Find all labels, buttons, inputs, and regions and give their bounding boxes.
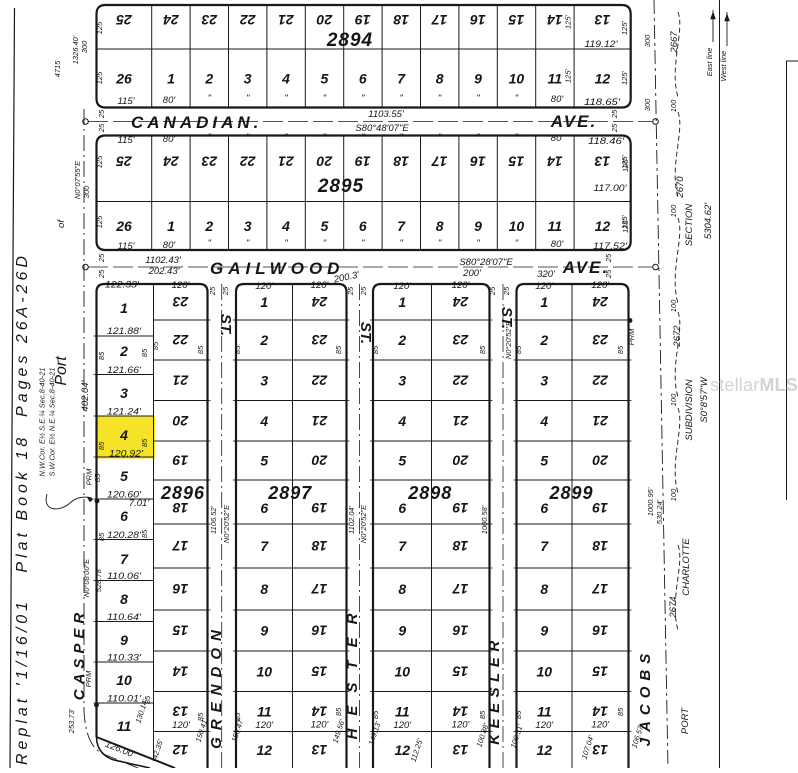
svg-text:N0°20′52"E: N0°20′52"E bbox=[359, 504, 368, 543]
svg-text:528.78': 528.78' bbox=[94, 567, 103, 592]
svg-text:15: 15 bbox=[508, 12, 524, 28]
svg-text:7: 7 bbox=[397, 70, 406, 86]
svg-text:122.33': 122.33' bbox=[105, 280, 140, 291]
svg-text:125: 125 bbox=[95, 71, 104, 84]
svg-text:25: 25 bbox=[604, 269, 613, 279]
svg-text:12: 12 bbox=[173, 742, 189, 758]
svg-text:20: 20 bbox=[453, 453, 470, 469]
svg-text:AVE.: AVE. bbox=[562, 258, 609, 277]
svg-text:4: 4 bbox=[539, 413, 548, 429]
svg-text:3: 3 bbox=[260, 372, 268, 388]
svg-text:18: 18 bbox=[312, 538, 328, 554]
svg-text:120': 120' bbox=[452, 720, 471, 731]
svg-text:24: 24 bbox=[163, 12, 180, 28]
svg-text:15: 15 bbox=[592, 663, 608, 679]
svg-text:25: 25 bbox=[610, 109, 619, 119]
svg-text:202.43': 202.43' bbox=[148, 266, 181, 277]
svg-text:2894: 2894 bbox=[326, 30, 373, 51]
svg-text:25: 25 bbox=[346, 286, 355, 296]
svg-text:85: 85 bbox=[371, 710, 380, 719]
svg-text:125': 125' bbox=[564, 68, 573, 83]
svg-text:12: 12 bbox=[256, 742, 272, 758]
svg-text:25: 25 bbox=[116, 12, 133, 28]
svg-text:1102.04': 1102.04' bbox=[347, 505, 356, 534]
svg-text:22: 22 bbox=[453, 372, 470, 388]
svg-text:300: 300 bbox=[643, 34, 652, 47]
svg-text:of: of bbox=[56, 219, 67, 228]
svg-text:23: 23 bbox=[201, 12, 218, 28]
svg-text:GAILWOOD: GAILWOOD bbox=[210, 259, 344, 278]
svg-text:85: 85 bbox=[196, 345, 205, 354]
svg-text:125': 125' bbox=[620, 20, 629, 35]
svg-text:115': 115' bbox=[118, 96, 136, 107]
svg-text:24: 24 bbox=[592, 294, 609, 310]
svg-text:23: 23 bbox=[312, 332, 329, 348]
svg-text:115': 115' bbox=[118, 135, 136, 146]
svg-text:13: 13 bbox=[592, 742, 608, 758]
svg-text:24: 24 bbox=[163, 154, 180, 170]
svg-text:7: 7 bbox=[398, 538, 407, 554]
svg-text:120': 120' bbox=[255, 720, 274, 731]
svg-text:530.24': 530.24' bbox=[655, 499, 664, 524]
svg-text:6: 6 bbox=[260, 500, 268, 516]
svg-text:23: 23 bbox=[201, 154, 218, 170]
svg-text:N0°20′52"E: N0°20′52"E bbox=[504, 320, 513, 359]
svg-text:9: 9 bbox=[398, 623, 406, 639]
svg-text:125: 125 bbox=[95, 215, 104, 228]
svg-text:8: 8 bbox=[436, 218, 444, 234]
svg-text:CANADIAN.: CANADIAN. bbox=[131, 113, 262, 132]
svg-text:2898: 2898 bbox=[407, 483, 452, 503]
svg-text:ST.: ST. bbox=[217, 314, 234, 336]
svg-text:SECTION: SECTION bbox=[684, 204, 695, 246]
svg-text:10: 10 bbox=[536, 663, 552, 679]
svg-text:15: 15 bbox=[312, 663, 328, 679]
svg-text:85: 85 bbox=[514, 710, 523, 719]
svg-text:6: 6 bbox=[540, 500, 548, 516]
svg-text:15: 15 bbox=[508, 154, 524, 170]
svg-text:4: 4 bbox=[281, 218, 290, 234]
svg-text:18: 18 bbox=[393, 154, 409, 170]
svg-text:7: 7 bbox=[397, 218, 406, 234]
svg-text:5: 5 bbox=[321, 70, 329, 86]
svg-text:14: 14 bbox=[547, 154, 563, 170]
svg-text:13: 13 bbox=[173, 704, 189, 720]
svg-text:85: 85 bbox=[140, 438, 149, 447]
svg-text:2: 2 bbox=[204, 70, 213, 86]
svg-text:200': 200' bbox=[462, 268, 482, 279]
svg-text:1: 1 bbox=[398, 294, 406, 310]
svg-text:4: 4 bbox=[119, 427, 128, 443]
svg-text:110.01': 110.01' bbox=[107, 694, 142, 705]
svg-text:7: 7 bbox=[260, 538, 269, 554]
svg-text:16: 16 bbox=[173, 581, 189, 597]
svg-text:110.33': 110.33' bbox=[107, 653, 142, 664]
svg-text:120': 120' bbox=[591, 720, 610, 731]
svg-text:10: 10 bbox=[509, 70, 525, 86]
svg-text:253.73': 253.73' bbox=[67, 708, 76, 734]
svg-text:AVE.: AVE. bbox=[550, 112, 597, 131]
svg-text:2: 2 bbox=[119, 343, 128, 359]
svg-text:5: 5 bbox=[398, 453, 406, 469]
svg-text:1: 1 bbox=[260, 294, 268, 310]
svg-text:PORT: PORT bbox=[680, 707, 691, 734]
svg-text:12: 12 bbox=[536, 742, 552, 758]
svg-text:22: 22 bbox=[240, 12, 257, 28]
svg-text:21: 21 bbox=[173, 372, 190, 388]
svg-text:7: 7 bbox=[540, 538, 549, 554]
svg-text:13: 13 bbox=[453, 742, 469, 758]
svg-text:S80°28′07"E: S80°28′07"E bbox=[459, 257, 513, 268]
svg-text:25: 25 bbox=[97, 123, 106, 133]
svg-text:21: 21 bbox=[278, 154, 295, 170]
svg-text:320': 320' bbox=[537, 269, 556, 280]
svg-text:19: 19 bbox=[453, 500, 469, 516]
svg-text:1103.55': 1103.55' bbox=[368, 109, 405, 120]
svg-text:117.52': 117.52' bbox=[593, 241, 628, 252]
svg-text:100: 100 bbox=[669, 393, 678, 406]
svg-text:24: 24 bbox=[312, 294, 329, 310]
svg-text:10: 10 bbox=[256, 663, 272, 679]
svg-text:4: 4 bbox=[259, 413, 268, 429]
svg-text:25: 25 bbox=[221, 286, 230, 296]
svg-text:12: 12 bbox=[595, 218, 611, 234]
svg-text:N0°07′55"E: N0°07′55"E bbox=[73, 160, 82, 199]
svg-text:2667: 2667 bbox=[669, 31, 680, 54]
svg-text:125': 125' bbox=[621, 218, 630, 233]
svg-text:6: 6 bbox=[359, 70, 367, 86]
svg-text:4715: 4715 bbox=[53, 60, 62, 78]
svg-text:2: 2 bbox=[539, 332, 548, 348]
svg-text:SUBDIVISION: SUBDIVISION bbox=[684, 379, 695, 440]
svg-text:25: 25 bbox=[97, 253, 106, 263]
svg-text:85: 85 bbox=[478, 710, 487, 719]
svg-text:85: 85 bbox=[140, 348, 149, 357]
svg-text:23: 23 bbox=[173, 294, 190, 310]
svg-text:19: 19 bbox=[355, 154, 371, 170]
svg-text:8: 8 bbox=[398, 581, 406, 597]
svg-text:85: 85 bbox=[616, 345, 625, 354]
svg-text:80': 80' bbox=[551, 239, 565, 250]
svg-text:100: 100 bbox=[669, 299, 678, 312]
svg-text:120': 120' bbox=[535, 281, 554, 292]
svg-text:6: 6 bbox=[398, 500, 406, 516]
svg-text:3: 3 bbox=[398, 372, 406, 388]
svg-text:115': 115' bbox=[118, 241, 136, 252]
svg-text:14: 14 bbox=[453, 704, 469, 720]
svg-text:8: 8 bbox=[540, 581, 548, 597]
svg-text:1: 1 bbox=[167, 218, 175, 234]
svg-text:120': 120' bbox=[452, 280, 471, 291]
svg-text:300: 300 bbox=[643, 98, 652, 111]
svg-text:2895: 2895 bbox=[317, 176, 364, 197]
svg-text:25: 25 bbox=[116, 154, 133, 170]
svg-text:5: 5 bbox=[120, 468, 128, 484]
svg-text:117.00': 117.00' bbox=[594, 183, 628, 194]
svg-text:PRM: PRM bbox=[84, 670, 93, 687]
svg-text:120': 120' bbox=[311, 280, 330, 291]
svg-text:23: 23 bbox=[453, 332, 470, 348]
svg-text:19: 19 bbox=[592, 500, 608, 516]
svg-text:85: 85 bbox=[140, 529, 149, 538]
svg-text:25: 25 bbox=[502, 286, 511, 296]
svg-text:24: 24 bbox=[453, 294, 470, 310]
svg-text:HESTER: HESTER bbox=[344, 601, 361, 740]
svg-text:2672: 2672 bbox=[672, 325, 683, 348]
svg-text:10: 10 bbox=[116, 672, 132, 688]
svg-text:22: 22 bbox=[240, 154, 257, 170]
svg-text:East line: East line bbox=[705, 48, 714, 77]
svg-text:6: 6 bbox=[120, 508, 128, 524]
svg-text:80': 80' bbox=[163, 240, 177, 251]
svg-text:CHARLOTTE: CHARLOTTE bbox=[681, 538, 692, 596]
svg-text:25: 25 bbox=[488, 286, 497, 296]
svg-text:Replat ′1/16/01 Plat Book 18: Replat ′1/16/01 Plat Book 18 Pages 26A-2… bbox=[14, 252, 31, 765]
svg-text:80': 80' bbox=[551, 133, 565, 144]
svg-text:300: 300 bbox=[82, 185, 91, 198]
svg-text:25: 25 bbox=[97, 109, 106, 119]
svg-text:17: 17 bbox=[591, 581, 608, 597]
svg-text:11: 11 bbox=[257, 704, 272, 720]
svg-text:3: 3 bbox=[540, 372, 548, 388]
svg-text:13: 13 bbox=[312, 742, 328, 758]
svg-text:25: 25 bbox=[359, 286, 368, 296]
svg-text:120.28': 120.28' bbox=[107, 530, 142, 541]
svg-text:20: 20 bbox=[312, 453, 329, 469]
svg-text:2: 2 bbox=[259, 332, 268, 348]
svg-text:402.04': 402.04' bbox=[80, 379, 91, 411]
svg-text:11: 11 bbox=[117, 718, 132, 734]
svg-text:16: 16 bbox=[453, 623, 469, 639]
svg-text:N0°08′00"E: N0°08′00"E bbox=[82, 558, 91, 597]
svg-text:West line: West line bbox=[719, 51, 728, 82]
svg-text:5: 5 bbox=[321, 218, 329, 234]
svg-text:10: 10 bbox=[509, 218, 525, 234]
svg-text:1: 1 bbox=[540, 294, 548, 310]
svg-text:26: 26 bbox=[115, 218, 132, 234]
svg-text:14: 14 bbox=[173, 663, 189, 679]
svg-text:26: 26 bbox=[115, 70, 132, 86]
svg-text:125: 125 bbox=[95, 155, 104, 168]
svg-text:17: 17 bbox=[431, 154, 448, 170]
svg-text:13: 13 bbox=[594, 154, 610, 170]
svg-text:6: 6 bbox=[359, 218, 367, 234]
svg-text:22: 22 bbox=[173, 332, 190, 348]
svg-text:20: 20 bbox=[316, 154, 333, 170]
svg-text:25: 25 bbox=[97, 269, 106, 279]
svg-text:20: 20 bbox=[592, 453, 609, 469]
svg-text:2899: 2899 bbox=[548, 483, 593, 503]
svg-text:25: 25 bbox=[604, 253, 613, 263]
svg-text:1: 1 bbox=[120, 300, 128, 316]
svg-text:100: 100 bbox=[669, 204, 678, 217]
svg-text:13: 13 bbox=[594, 12, 610, 28]
svg-text:2896: 2896 bbox=[160, 483, 205, 503]
svg-text:120.92': 120.92' bbox=[109, 449, 144, 460]
svg-text:85: 85 bbox=[93, 473, 102, 482]
svg-text:18: 18 bbox=[393, 12, 409, 28]
svg-text:1000.95': 1000.95' bbox=[646, 487, 655, 516]
svg-text:12: 12 bbox=[394, 742, 410, 758]
svg-text:2: 2 bbox=[204, 218, 213, 234]
svg-text:18: 18 bbox=[453, 538, 469, 554]
svg-text:22: 22 bbox=[592, 372, 609, 388]
svg-text:120': 120' bbox=[535, 720, 554, 731]
svg-text:17: 17 bbox=[431, 12, 448, 28]
svg-text:120': 120' bbox=[311, 720, 330, 731]
svg-text:8: 8 bbox=[436, 70, 444, 86]
svg-text:80': 80' bbox=[551, 94, 565, 105]
svg-text:85: 85 bbox=[616, 707, 625, 716]
svg-text:9: 9 bbox=[260, 623, 268, 639]
svg-text:120': 120' bbox=[393, 720, 412, 731]
svg-text:85: 85 bbox=[371, 345, 380, 354]
svg-text:7.01': 7.01' bbox=[129, 498, 150, 509]
svg-text:121.24': 121.24' bbox=[107, 407, 142, 418]
svg-text:14: 14 bbox=[592, 704, 608, 720]
svg-text:21: 21 bbox=[453, 413, 470, 429]
svg-text:1102.43': 1102.43' bbox=[145, 255, 182, 266]
svg-text:80': 80' bbox=[163, 95, 177, 106]
svg-text:125': 125' bbox=[564, 14, 573, 29]
svg-text:85: 85 bbox=[97, 441, 106, 450]
svg-text:8: 8 bbox=[120, 591, 128, 607]
svg-text:9: 9 bbox=[540, 623, 548, 639]
svg-text:20: 20 bbox=[316, 12, 333, 28]
svg-text:120': 120' bbox=[591, 280, 610, 291]
svg-text:15: 15 bbox=[453, 663, 469, 679]
svg-text:118.65': 118.65' bbox=[584, 97, 621, 108]
svg-text:85: 85 bbox=[233, 345, 242, 354]
svg-text:3: 3 bbox=[244, 218, 252, 234]
svg-text:100: 100 bbox=[669, 99, 678, 112]
svg-text:8: 8 bbox=[260, 581, 268, 597]
svg-text:85: 85 bbox=[334, 707, 343, 716]
svg-text:300: 300 bbox=[80, 40, 89, 53]
svg-text:5: 5 bbox=[540, 453, 548, 469]
svg-text:3: 3 bbox=[120, 385, 128, 401]
svg-text:85: 85 bbox=[97, 351, 106, 360]
svg-text:120': 120' bbox=[172, 280, 191, 291]
svg-text:21: 21 bbox=[312, 413, 329, 429]
svg-text:PRM: PRM bbox=[627, 328, 636, 345]
svg-text:100: 100 bbox=[669, 488, 678, 501]
svg-text:19: 19 bbox=[355, 12, 371, 28]
svg-text:11: 11 bbox=[395, 704, 410, 720]
svg-text:16: 16 bbox=[470, 12, 486, 28]
svg-text:120': 120' bbox=[255, 281, 274, 292]
svg-text:16: 16 bbox=[312, 623, 328, 639]
svg-text:9: 9 bbox=[120, 632, 128, 648]
svg-text:85: 85 bbox=[478, 345, 487, 354]
svg-text:14: 14 bbox=[547, 12, 563, 28]
svg-text:11: 11 bbox=[537, 704, 552, 720]
svg-text:11: 11 bbox=[548, 218, 563, 234]
svg-text:17: 17 bbox=[172, 538, 189, 554]
svg-text:10: 10 bbox=[394, 663, 410, 679]
svg-text:12: 12 bbox=[595, 70, 611, 86]
svg-text:125': 125' bbox=[621, 157, 630, 172]
svg-text:9: 9 bbox=[474, 70, 482, 86]
svg-text:5: 5 bbox=[260, 453, 268, 469]
svg-text:125': 125' bbox=[620, 70, 629, 85]
svg-text:9: 9 bbox=[474, 218, 482, 234]
svg-text:25: 25 bbox=[610, 123, 619, 133]
svg-text:15: 15 bbox=[173, 623, 189, 639]
svg-text:4: 4 bbox=[397, 413, 406, 429]
svg-text:S.W.Cor. E½ N.E.¼ Sec.8-40-21: S.W.Cor. E½ N.E.¼ Sec.8-40-21 bbox=[48, 367, 57, 476]
svg-text:125: 125 bbox=[95, 21, 104, 34]
svg-text:22: 22 bbox=[312, 372, 329, 388]
svg-text:121.66': 121.66' bbox=[107, 365, 142, 376]
svg-text:21: 21 bbox=[592, 413, 609, 429]
svg-text:120': 120' bbox=[393, 281, 412, 292]
svg-text:S80°48′07"E: S80°48′07"E bbox=[355, 123, 409, 134]
svg-text:19: 19 bbox=[173, 453, 189, 469]
svg-text:120': 120' bbox=[172, 720, 191, 731]
svg-text:7: 7 bbox=[120, 551, 129, 567]
svg-text:2670: 2670 bbox=[675, 176, 686, 199]
svg-text:1000.58': 1000.58' bbox=[480, 505, 489, 534]
svg-text:118.46': 118.46' bbox=[588, 136, 625, 147]
svg-text:1: 1 bbox=[167, 70, 175, 86]
svg-text:16: 16 bbox=[592, 623, 608, 639]
svg-text:16: 16 bbox=[470, 154, 486, 170]
svg-text:25: 25 bbox=[208, 286, 217, 296]
svg-text:S0°8′57"W: S0°8′57"W bbox=[699, 376, 710, 422]
svg-text:20: 20 bbox=[173, 413, 190, 429]
svg-text:17: 17 bbox=[452, 581, 469, 597]
svg-text:11: 11 bbox=[548, 70, 563, 86]
svg-text:121.88': 121.88' bbox=[107, 326, 142, 337]
svg-text:19: 19 bbox=[312, 500, 328, 516]
svg-text:4: 4 bbox=[281, 70, 290, 86]
svg-text:21: 21 bbox=[278, 12, 295, 28]
svg-text:110.64': 110.64' bbox=[107, 612, 142, 623]
svg-text:85: 85 bbox=[334, 345, 343, 354]
svg-text:2897: 2897 bbox=[267, 483, 312, 503]
svg-text:80': 80' bbox=[163, 134, 177, 145]
svg-text:N.W.Cor. E½ S.E.¼ Sec.8-40-21: N.W.Cor. E½ S.E.¼ Sec.8-40-21 bbox=[38, 367, 47, 476]
svg-text:23: 23 bbox=[592, 332, 609, 348]
svg-text:85: 85 bbox=[151, 341, 160, 350]
svg-text:85: 85 bbox=[514, 345, 523, 354]
svg-text:14: 14 bbox=[312, 704, 328, 720]
svg-text:N0°20′52"E: N0°20′52"E bbox=[222, 504, 231, 543]
svg-text:2: 2 bbox=[397, 332, 406, 348]
svg-text:5304.62': 5304.62' bbox=[703, 202, 714, 239]
svg-text:17: 17 bbox=[311, 581, 328, 597]
svg-text:110.06': 110.06' bbox=[107, 571, 142, 582]
svg-text:stellarMLS: stellarMLS bbox=[710, 375, 798, 395]
svg-text:1106.52': 1106.52' bbox=[209, 505, 218, 534]
svg-text:3: 3 bbox=[244, 70, 252, 86]
svg-text:ST.: ST. bbox=[357, 322, 374, 344]
svg-text:18: 18 bbox=[592, 538, 608, 554]
svg-text:GRENDON: GRENDON bbox=[208, 623, 225, 749]
svg-text:1326.40': 1326.40' bbox=[71, 35, 80, 64]
svg-text:2674: 2674 bbox=[668, 596, 679, 618]
svg-text:119.12': 119.12' bbox=[585, 39, 619, 50]
